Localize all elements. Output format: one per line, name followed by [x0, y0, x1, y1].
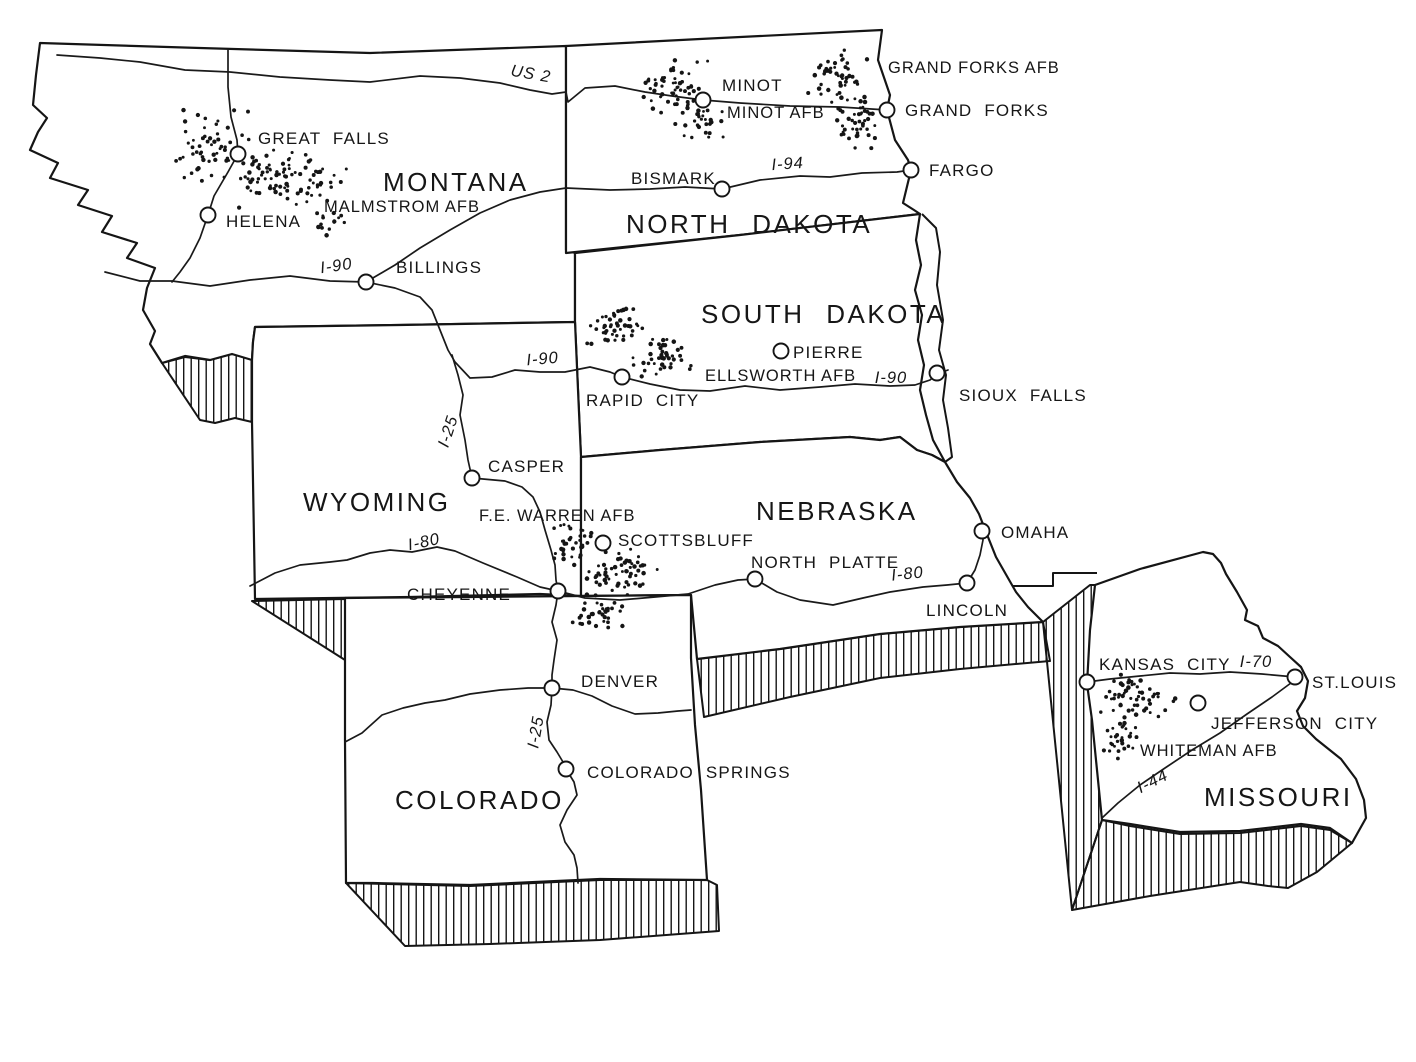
city-label-denver: DENVER [581, 672, 659, 691]
state-label-north-dakota: NORTH DAKOTA [626, 209, 872, 239]
city-label-scottsbluff: SCOTTSBLUFF [618, 531, 754, 550]
city-marker-jefferson-city [1191, 696, 1206, 711]
afb-label-fe-warren-afb: F.E. WARREN AFB [479, 507, 636, 525]
city-label-colorado-springs: COLORADO SPRINGS [587, 763, 791, 782]
city-label-lincoln: LINCOLN [926, 601, 1008, 620]
colorado-south-wall [346, 880, 719, 946]
montana-outline [30, 43, 575, 363]
city-label-billings: BILLINGS [396, 258, 482, 277]
highway-label-i-70-mo: I-70 [1240, 653, 1272, 671]
city-label-fargo: FARGO [929, 161, 995, 180]
city-label-great-falls: GREAT FALLS [258, 129, 390, 148]
state-label-nebraska: NEBRASKA [756, 496, 918, 526]
city-label-pierre: PIERRE [793, 343, 864, 362]
city-label-sioux-falls: SIOUX FALLS [959, 386, 1087, 405]
state-label-colorado: COLORADO [395, 785, 564, 815]
south-dakota-outline [575, 214, 945, 462]
highway-label-i-94: I-94 [771, 154, 805, 174]
city-marker-minot [696, 93, 711, 108]
city-marker-omaha [975, 524, 990, 539]
city-marker-billings [359, 275, 374, 290]
city-marker-colorado-springs [559, 762, 574, 777]
afb-label-whiteman-afb: WHITEMAN AFB [1140, 742, 1278, 760]
highway-label-i-90-sd-e: I-90 [875, 369, 907, 387]
city-marker-lincoln [960, 576, 975, 591]
city-marker-scottsbluff [596, 536, 611, 551]
city-marker-helena [201, 208, 216, 223]
afb-label-minot-afb: MINOT AFB [727, 104, 825, 122]
missouri-south-wall [1072, 820, 1352, 910]
afb-label-grand-forks-afb: GRAND FORKS AFB [888, 59, 1060, 77]
city-label-jefferson-city: JEFFERSON CITY [1211, 714, 1378, 733]
city-marker-pierre [774, 344, 789, 359]
city-marker-denver [545, 681, 560, 696]
city-label-cheyenne: CHEYENNE [407, 585, 511, 604]
city-marker-bismark [715, 182, 730, 197]
iowa-shelf-line [1012, 573, 1097, 586]
montana-south-wall [162, 354, 252, 423]
city-marker-north-platte [748, 572, 763, 587]
wyoming-south-wall [252, 599, 345, 660]
highway-label-i-90-sd-w: I-90 [526, 349, 560, 370]
city-marker-st-louis [1288, 670, 1303, 685]
state-label-wyoming: WYOMING [303, 487, 451, 517]
city-marker-kansas-city [1080, 675, 1095, 690]
city-marker-sioux-falls [930, 366, 945, 381]
city-marker-casper [465, 471, 480, 486]
afb-label-ellsworth-afb: ELLSWORTH AFB [705, 367, 856, 385]
city-label-bismark: BISMARK [631, 169, 716, 188]
city-label-rapid-city: RAPID CITY [586, 391, 699, 410]
city-label-casper: CASPER [488, 457, 565, 476]
city-label-omaha: OMAHA [1001, 523, 1069, 542]
city-label-helena: HELENA [226, 212, 301, 231]
city-marker-rapid-city [615, 370, 630, 385]
city-label-st-louis: ST.LOUIS [1312, 673, 1397, 692]
city-label-grand-forks: GRAND FORKS [905, 101, 1049, 120]
afb-label-malmstrom-afb: MALMSTROM AFB [324, 198, 480, 216]
state-label-montana: MONTANA [383, 167, 529, 197]
city-label-minot: MINOT [722, 76, 783, 95]
city-marker-cheyenne [551, 584, 566, 599]
city-label-north-platte: NORTH PLATTE [751, 553, 899, 572]
map-canvas: GREAT FALLSHELENABILLINGSMINOTGRAND FORK… [0, 0, 1416, 1062]
highway-label-i-80-ne: I-80 [890, 563, 924, 584]
state-label-missouri: MISSOURI [1204, 782, 1353, 812]
icbm-missile-fields-map: GREAT FALLSHELENABILLINGSMINOTGRAND FORK… [0, 0, 1416, 1062]
state-label-south-dakota: SOUTH DAKOTA [701, 299, 946, 329]
city-label-kansas-city: KANSAS CITY [1099, 655, 1231, 674]
city-marker-grand-forks [880, 103, 895, 118]
city-marker-great-falls [231, 147, 246, 162]
city-marker-fargo [904, 163, 919, 178]
